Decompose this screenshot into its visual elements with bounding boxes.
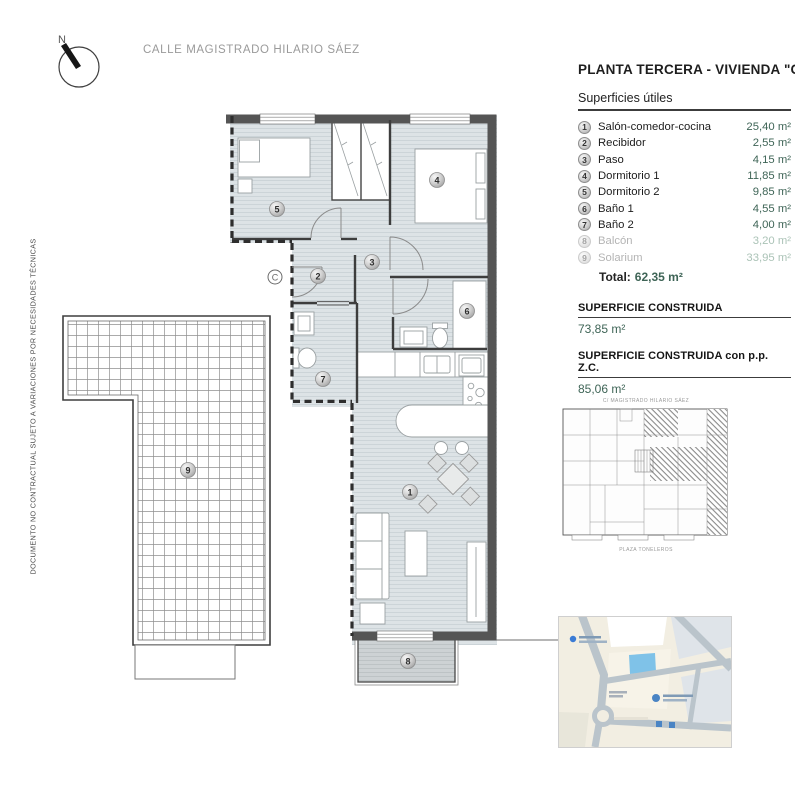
room-area: 4,00 m²: [753, 219, 791, 231]
built-area-block: SUPERFICIE CONSTRUIDA 73,85 m²: [578, 302, 791, 336]
room-number-badge: 4: [578, 170, 591, 183]
room-badge-4: 4: [430, 173, 445, 188]
surfaces-header: Superficies útiles: [578, 91, 791, 111]
surfaces-table: 1Salón-comedor-cocina25,40 m²2Recibidor2…: [578, 119, 791, 266]
keyplan-drawing: [560, 407, 732, 545]
entrance-label: C: [268, 270, 282, 284]
keyplan-plaza-bottom-label: PLAZA TONELEROS: [556, 547, 736, 553]
room-badge-5: 5: [270, 202, 285, 217]
entrance-letter: C: [272, 272, 279, 282]
surface-row: 5Dormitorio 29,85 m²: [578, 184, 791, 200]
street-label: CALLE MAGISTRADO HILARIO SÁEZ: [143, 44, 360, 56]
room-area: 4,15 m²: [753, 154, 791, 166]
room-number-badge: 7: [578, 218, 591, 231]
surface-row: 2Recibidor2,55 m²: [578, 135, 791, 151]
info-panel: PLANTA TERCERA - VIVIENDA "C" Superficie…: [578, 62, 791, 396]
room-area: 3,20 m²: [753, 235, 791, 247]
room-area: 9,85 m²: [753, 186, 791, 198]
room-badge-2: 2: [311, 269, 326, 284]
surface-row: 7Baño 24,00 m²: [578, 217, 791, 233]
room-label: Dormitorio 2: [598, 186, 660, 198]
room-label: Paso: [598, 154, 624, 166]
room-badge-1: 1: [403, 485, 418, 500]
room-number-badge: 6: [578, 202, 591, 215]
svg-text:9: 9: [185, 465, 190, 475]
room-label: Solarium: [598, 252, 643, 264]
built-area-zc-label: SUPERFICIE CONSTRUIDA con p.p. Z.C.: [578, 350, 791, 378]
room-label: Baño 1: [598, 203, 634, 215]
surface-row: 6Baño 14,55 m²: [578, 200, 791, 216]
built-area-zc-block: SUPERFICIE CONSTRUIDA con p.p. Z.C. 85,0…: [578, 350, 791, 396]
svg-text:2: 2: [315, 271, 320, 281]
svg-text:3: 3: [369, 257, 374, 267]
built-area-zc-value: 85,06 m²: [578, 382, 791, 396]
room-badge-3: 3: [365, 255, 380, 270]
room-number-badge: 9: [578, 251, 591, 264]
map-label-bars: [609, 691, 627, 694]
sofa: [356, 513, 389, 624]
room-label: Recibidor: [598, 137, 646, 149]
room-area: 2,55 m²: [753, 137, 791, 149]
room-badge-8: 8: [401, 654, 416, 669]
built-area-value: 73,85 m²: [578, 322, 791, 336]
tv-unit: [467, 542, 486, 622]
built-area-label: SUPERFICIE CONSTRUIDA: [578, 302, 791, 318]
room-label: Dormitorio 1: [598, 170, 660, 182]
room-badge-6: 6: [460, 304, 475, 319]
keyplan-street-top-label: C/ MAGISTRADO HILARIO SÁEZ: [556, 398, 736, 404]
room-number-badge: 8: [578, 235, 591, 248]
compass: N: [45, 26, 120, 101]
svg-text:5: 5: [274, 204, 279, 214]
surface-row: 8Balcón3,20 m²: [578, 233, 791, 249]
wardrobe: [332, 120, 390, 200]
bedroom1-bed: [415, 149, 487, 223]
floor-plan: C 1 2 3 4 5 6 7 8 9: [55, 105, 560, 705]
keyplan-highlight-hatch: [644, 409, 678, 437]
coffee-table: [405, 531, 427, 576]
plan-sheet: N CALLE MAGISTRADO HILARIO SÁEZ DOCUMENT…: [0, 0, 795, 785]
room-badge-7: 7: [316, 372, 331, 387]
svg-text:4: 4: [434, 175, 439, 185]
surface-row: 3Paso4,15 m²: [578, 152, 791, 168]
svg-text:6: 6: [464, 306, 469, 316]
room-badge-9: 9: [181, 463, 196, 478]
surface-row: 4Dormitorio 111,85 m²: [578, 168, 791, 184]
room-number-badge: 1: [578, 121, 591, 134]
room-label: Baño 2: [598, 219, 634, 231]
svg-text:1: 1: [407, 487, 412, 497]
room-number-badge: 3: [578, 153, 591, 166]
room-label: Balcón: [598, 235, 633, 247]
lower-balcony-outline: [135, 645, 235, 679]
disclaimer-note: DOCUMENTO NO CONTRACTUAL SUJETO A VARIAC…: [29, 255, 38, 575]
svg-text:7: 7: [320, 374, 325, 384]
map-roundabout: [595, 708, 612, 725]
total-line: Total:62,35 m²: [599, 270, 791, 284]
svg-text:8: 8: [405, 656, 410, 666]
room-label: Salón-comedor-cocina: [598, 121, 711, 133]
surface-row: 1Salón-comedor-cocina25,40 m²: [578, 119, 791, 135]
solarium-terrace: [63, 316, 270, 679]
page-title: PLANTA TERCERA - VIVIENDA "C": [578, 62, 791, 77]
room-area: 33,95 m²: [746, 252, 791, 264]
location-map: [558, 616, 732, 748]
room-number-badge: 2: [578, 137, 591, 150]
room-number-badge: 5: [578, 186, 591, 199]
room-area: 11,85 m²: [747, 170, 791, 182]
room-area: 4,55 m²: [753, 203, 791, 215]
total-value: 62,35 m²: [635, 270, 683, 284]
surface-row: 9Solarium33,95 m²: [578, 249, 791, 265]
building-key-plan: C/ MAGISTRADO HILARIO SÁEZ PLAZA TONELER…: [556, 398, 736, 553]
total-label: Total:: [599, 270, 631, 284]
room-area: 25,40 m²: [746, 121, 791, 133]
